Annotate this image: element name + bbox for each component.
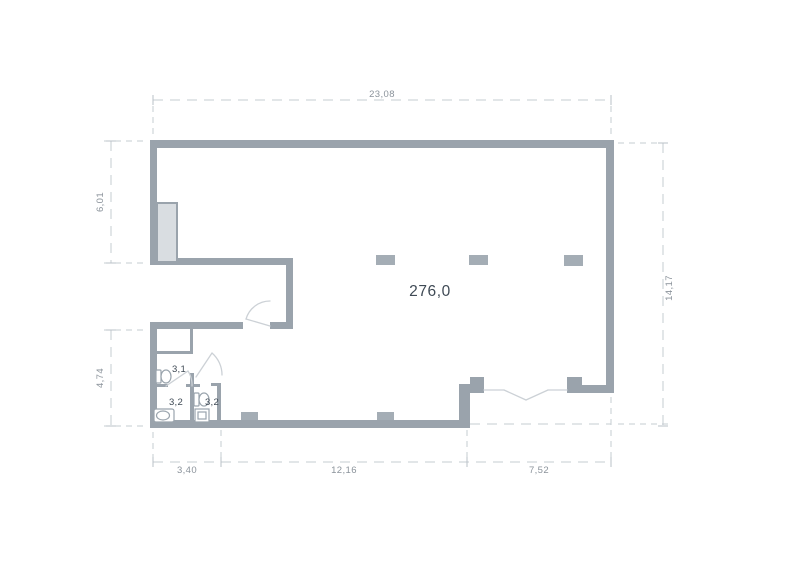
- column-3: [564, 255, 583, 266]
- room-32-right-label: 3,2: [205, 397, 219, 408]
- wc2-door-arc: [212, 353, 222, 375]
- corridor-bottom-wall-right: [270, 322, 293, 329]
- right-wall: [606, 140, 614, 393]
- dimension-lines: [104, 95, 668, 467]
- dim-bottom-right-label: 7,52: [529, 465, 549, 476]
- left-wall-upper: [150, 140, 157, 265]
- partition-h1: [157, 351, 193, 354]
- corridor-right-wall: [286, 258, 293, 329]
- floor-plan-canvas: 23,08 6,01 4,74 14,17 3,40 12,16 7,52 27…: [0, 0, 800, 581]
- floor-plan-drawing: 23,08 6,01 4,74 14,17 3,40 12,16 7,52 27…: [0, 0, 800, 581]
- corridor-bottom-wall-left: [150, 322, 243, 329]
- dim-right-label: 14,17: [664, 275, 675, 301]
- door-pier-right: [567, 377, 582, 393]
- room-32-left-label: 3,2: [169, 397, 183, 408]
- bottom-pier-1: [241, 412, 258, 420]
- column-2: [469, 255, 488, 265]
- entry-door-leaf: [246, 319, 270, 326]
- dim-left-upper-label: 6,01: [95, 192, 106, 212]
- bottom-pier-2: [377, 412, 394, 420]
- sink-icon: [195, 409, 209, 422]
- dim-bottom-middle-label: 12,16: [331, 465, 357, 476]
- top-wall: [150, 140, 614, 148]
- column-1: [376, 255, 395, 265]
- bottom-right-wall-segment: [582, 385, 614, 393]
- door-pier-left: [470, 377, 484, 393]
- main-room-area-label: 276,0: [409, 283, 451, 300]
- bathtub-icon: [154, 409, 174, 422]
- french-door-leaf-right: [526, 390, 548, 400]
- entry-door-arc: [246, 301, 270, 319]
- dim-top-label: 23,08: [369, 89, 395, 100]
- partition-v1: [190, 329, 193, 354]
- shaft: [157, 203, 177, 262]
- dim-left-lower-label: 4,74: [95, 368, 106, 388]
- room-31-label: 3,1: [172, 364, 186, 375]
- wc2-door-leaf: [196, 353, 212, 377]
- step-wall: [459, 384, 470, 428]
- fixtures: [154, 370, 209, 422]
- doors: [166, 301, 567, 400]
- french-door-leaf-left: [504, 390, 526, 400]
- dim-bottom-left-label: 3,40: [177, 465, 197, 476]
- toilet-icon-1: [156, 370, 171, 383]
